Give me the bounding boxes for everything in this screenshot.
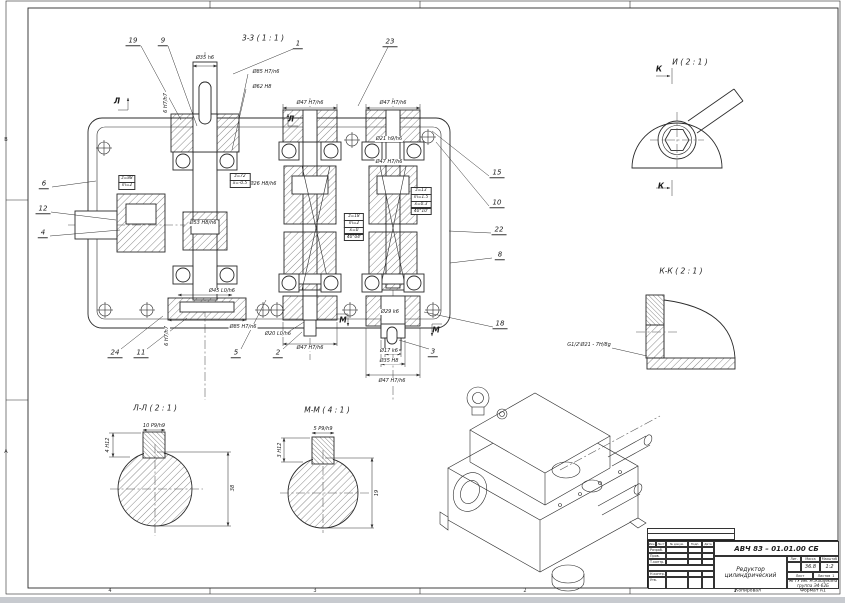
part-callout-8: 8 — [495, 250, 505, 260]
part-callout-22: 22 — [492, 225, 507, 235]
section-cut-letter: Л — [114, 97, 120, 106]
dimension-label: Ø21 h9/h6 — [375, 136, 403, 142]
dimension-label: Ø47 H7/h6 — [375, 159, 404, 165]
dimension-label: Ø47 H7/h6 — [296, 345, 325, 351]
dimension-label: Ø47 H7/h6 — [379, 100, 408, 106]
zone-number: 2 — [523, 588, 526, 594]
gear-spec-table: z=72x=-0.5 — [230, 174, 251, 188]
dimension-label: Ø85 H7/n6 — [252, 69, 281, 75]
dimension-label: Ø20 L0/h6 — [264, 331, 292, 337]
dimension-label: Ø35 H8 — [379, 358, 400, 364]
part-callout-24: 24 — [108, 348, 123, 358]
titleblock-doc-number: АВЧ 83 – 01.01.00 СБ — [714, 541, 839, 556]
section-title-ll: Л-Л ( 2 : 1 ) — [133, 404, 177, 413]
part-callout-6: 6 — [39, 179, 49, 189]
titleblock-utv-date — [702, 577, 714, 589]
part-callout-3: 3 — [428, 347, 438, 357]
dimension-label: Ø17 k6 — [379, 348, 399, 354]
part-callout-11: 11 — [134, 348, 149, 358]
gear-spec-table: z=13m=1.5x=0.340°10' — [411, 188, 432, 215]
zone-number: 4 — [108, 588, 111, 594]
section-cut-letter: М — [432, 326, 439, 335]
titleblock-sheets-label: Листов — [818, 574, 831, 578]
drawing-sheet: 19912315102281861242411523Ø35 h6Ø85 H7/n… — [0, 0, 845, 603]
dimension-label: Ø47 H7/h6 — [296, 100, 325, 106]
section-mm-view — [280, 433, 374, 533]
dimension-label: Ø53 H8/h6 — [189, 220, 218, 226]
isometric-view — [440, 387, 660, 591]
part-callout-10: 10 — [490, 198, 505, 208]
section-ll-view — [109, 430, 231, 536]
format-label: Формат А1 — [800, 589, 826, 594]
dimension-label: 19 — [374, 489, 380, 497]
section-cut-letter: М — [339, 316, 346, 325]
part-callout-5: 5 — [231, 348, 241, 358]
detail-i-view — [632, 68, 743, 196]
titleblock-utv-name — [666, 577, 688, 589]
part-callout-1: 1 — [293, 39, 303, 49]
part-callout-12: 12 — [36, 204, 51, 214]
titleblock-scale-value: 1:2 — [820, 562, 839, 572]
titleblock-row-utv: Утв. — [648, 577, 666, 589]
dimension-label: Ø62 H8 — [252, 84, 273, 90]
titleblock-spare-rows — [647, 528, 735, 540]
zone-letter: А — [4, 449, 7, 455]
titleblock-utv-sign — [688, 577, 702, 589]
titleblock-mass-value: 36.8 — [801, 562, 820, 572]
titleblock-sheets-value: 1 — [832, 574, 834, 578]
zone-letter: В — [4, 137, 7, 143]
section-cut-letter: К — [656, 65, 662, 74]
gear-spec-table: z=88m=2 — [118, 176, 135, 190]
titleblock-sheet-label: Лист — [796, 574, 805, 578]
part-callout-18: 18 — [493, 319, 508, 329]
copied-label: Копировал — [735, 589, 761, 594]
gear-spec-table: z=18m=2x=040°04' — [344, 214, 364, 241]
dimension-label: 6 H7/h7 — [163, 92, 169, 114]
dimension-label: 10 P9/h9 — [142, 423, 166, 429]
section-title-mm: М-М ( 4 : 1 ) — [304, 406, 350, 415]
title-block: АВЧ 83 – 01.01.00 СБ Редуктор цилиндриче… — [647, 540, 838, 588]
dimension-label: 5 P9/h9 — [312, 426, 333, 432]
bottom-gray-band — [0, 597, 845, 603]
dimension-label: Ø85 H7/n6 — [229, 324, 258, 330]
titleblock-lit-value — [787, 562, 801, 572]
dimension-label: Ø45 L0/h6 — [208, 288, 236, 294]
dimension-label: 4 H12 — [105, 437, 111, 454]
section-title-kk: К-К ( 2 : 1 ) — [659, 267, 702, 276]
zone-number: 3 — [313, 588, 316, 594]
part-callout-4: 4 — [38, 228, 48, 238]
part-callout-19: 19 — [126, 36, 141, 46]
cad-linework — [0, 0, 845, 603]
dimension-label: Ø26 H8/h6 — [249, 181, 278, 187]
part-callout-23: 23 — [383, 37, 398, 47]
section-cut-letter: К — [658, 182, 664, 191]
section-title-main: 3-3 ( 1 : 1 ) — [242, 34, 284, 43]
dimension-label: Ø35 h6 — [195, 55, 215, 61]
dimension-label: 6 H7/h7 — [164, 325, 170, 347]
dimension-label: Ø47 H7/h6 — [378, 378, 407, 384]
part-callout-2: 2 — [273, 348, 283, 358]
section-cut-letter: Л — [288, 115, 294, 124]
section-kk-view — [612, 295, 735, 369]
section-title-detail-i: И ( 2 : 1 ) — [672, 58, 707, 67]
dimension-label: Ø29 k6 — [380, 309, 400, 315]
dimension-label: G1/2'Ø21 - 7H/8g — [566, 342, 612, 348]
dimension-label: 38 — [230, 484, 236, 492]
part-callout-9: 9 — [158, 36, 168, 46]
dimension-label: 3 H12 — [277, 442, 283, 459]
part-callout-15: 15 — [490, 168, 505, 178]
titleblock-title: Редуктор цилиндрический — [714, 556, 787, 589]
